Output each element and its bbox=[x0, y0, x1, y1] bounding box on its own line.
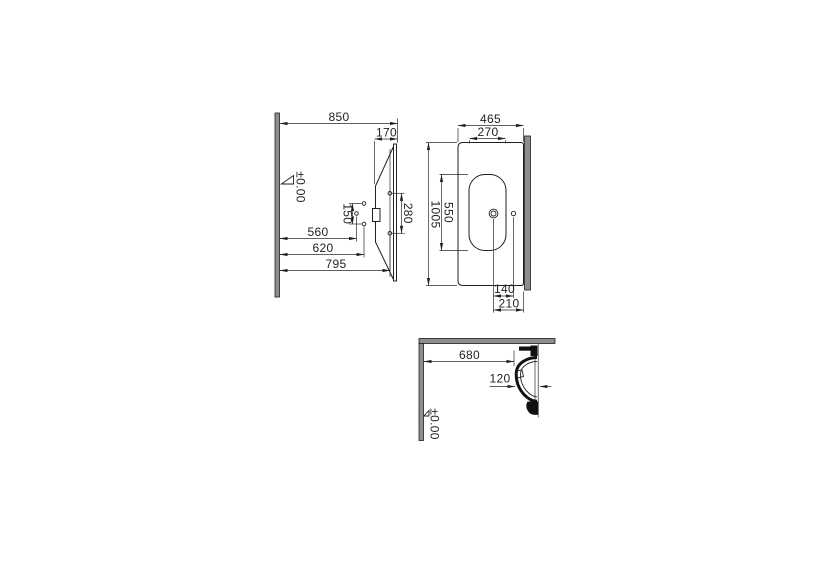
dim-210-label: 210 bbox=[499, 297, 520, 311]
dim-465-label: 465 bbox=[480, 112, 501, 126]
dim-680-label: 680 bbox=[459, 348, 480, 362]
dim-170-label: 170 bbox=[376, 126, 397, 140]
dim-1005-label: 1005 bbox=[429, 201, 443, 229]
bowl-outline bbox=[469, 175, 506, 251]
washbasin-technical-drawing: 850 170 280 150 560 620 bbox=[0, 0, 830, 584]
floor-bar-section bbox=[419, 344, 424, 441]
dim-850-label: 850 bbox=[329, 110, 350, 124]
drain-boss bbox=[526, 402, 538, 415]
datum-level-icon bbox=[282, 176, 294, 185]
datum-label-side: ±0.00 bbox=[294, 171, 308, 202]
supply-point-top bbox=[362, 202, 366, 206]
plan-view: 465 270 1005 550 140 210 bbox=[426, 112, 531, 313]
mounting-bracket-tab bbox=[531, 346, 538, 357]
drawing-sheet: 850 170 280 150 560 620 bbox=[0, 0, 830, 584]
dim-120-label: 120 bbox=[490, 372, 511, 386]
supply-point-bottom bbox=[362, 222, 366, 226]
wall-bar-section bbox=[419, 339, 555, 344]
dim-280-label: 280 bbox=[401, 203, 415, 224]
drain-outlet-bracket bbox=[373, 209, 381, 222]
dim-550-label: 550 bbox=[442, 202, 456, 223]
dim-140-label: 140 bbox=[494, 282, 515, 296]
basin-rim-edge bbox=[394, 144, 397, 281]
dim-270-label: 270 bbox=[478, 125, 499, 139]
dim-795-label: 795 bbox=[326, 257, 347, 271]
side-elevation-view: 850 170 280 150 560 620 bbox=[275, 110, 415, 297]
floor-bar bbox=[275, 113, 280, 297]
datum-label-section: ±0.00 bbox=[428, 408, 442, 439]
section-view: 680 120 ±0.00 bbox=[419, 339, 555, 441]
dim-620-label: 620 bbox=[313, 241, 334, 255]
dim-560-label: 560 bbox=[308, 225, 329, 239]
mounting-bracket-arm bbox=[519, 347, 532, 351]
dim-150-label: 150 bbox=[341, 203, 355, 224]
wall-bar-plan bbox=[525, 136, 531, 290]
